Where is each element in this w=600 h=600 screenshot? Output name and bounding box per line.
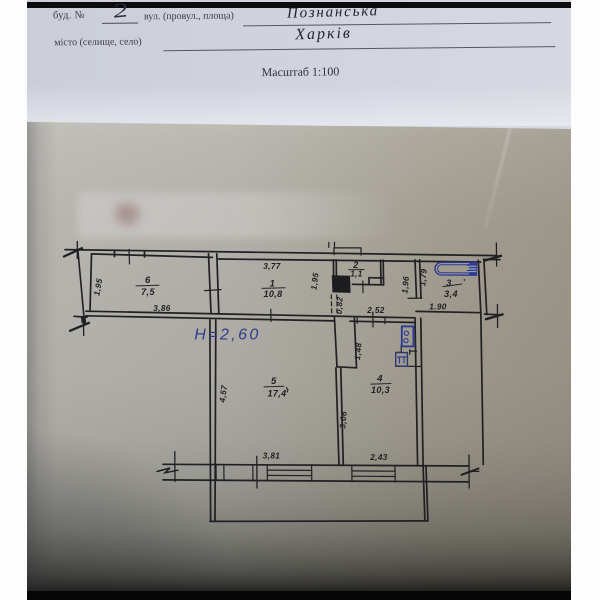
svg-text:1,1: 1,1 — [350, 270, 362, 279]
svg-text:0,82: 0,82 — [335, 296, 345, 314]
svg-text:1,48: 1,48 — [353, 342, 363, 360]
svg-text:3,86: 3,86 — [153, 304, 171, 313]
svg-text:2,43: 2,43 — [369, 453, 388, 462]
svg-text:1,79: 1,79 — [418, 268, 428, 286]
svg-text:10,3: 10,3 — [371, 385, 390, 395]
svg-text:17,4: 17,4 — [267, 389, 286, 399]
svg-text:1.90: 1.90 — [429, 302, 447, 311]
svg-text:6: 6 — [145, 275, 151, 286]
svg-text:3,77: 3,77 — [263, 262, 281, 271]
svg-text:10,8: 10,8 — [263, 289, 282, 299]
svg-text:2,52: 2,52 — [366, 306, 385, 315]
svg-text:H=2,60: H=2,60 — [194, 327, 260, 344]
svg-text:7,5: 7,5 — [141, 287, 155, 297]
svg-text:5: 5 — [271, 376, 277, 387]
svg-text:1,95: 1,95 — [309, 272, 320, 291]
svg-text:3,81: 3,81 — [263, 451, 281, 460]
svg-text:3,4: 3,4 — [444, 289, 458, 299]
svg-text:3,06: 3,06 — [338, 411, 348, 429]
svg-text:4: 4 — [376, 374, 383, 385]
svg-text:1,96: 1,96 — [400, 276, 410, 294]
svg-text:1,95: 1,95 — [92, 278, 104, 297]
svg-text:4,57: 4,57 — [218, 384, 229, 404]
